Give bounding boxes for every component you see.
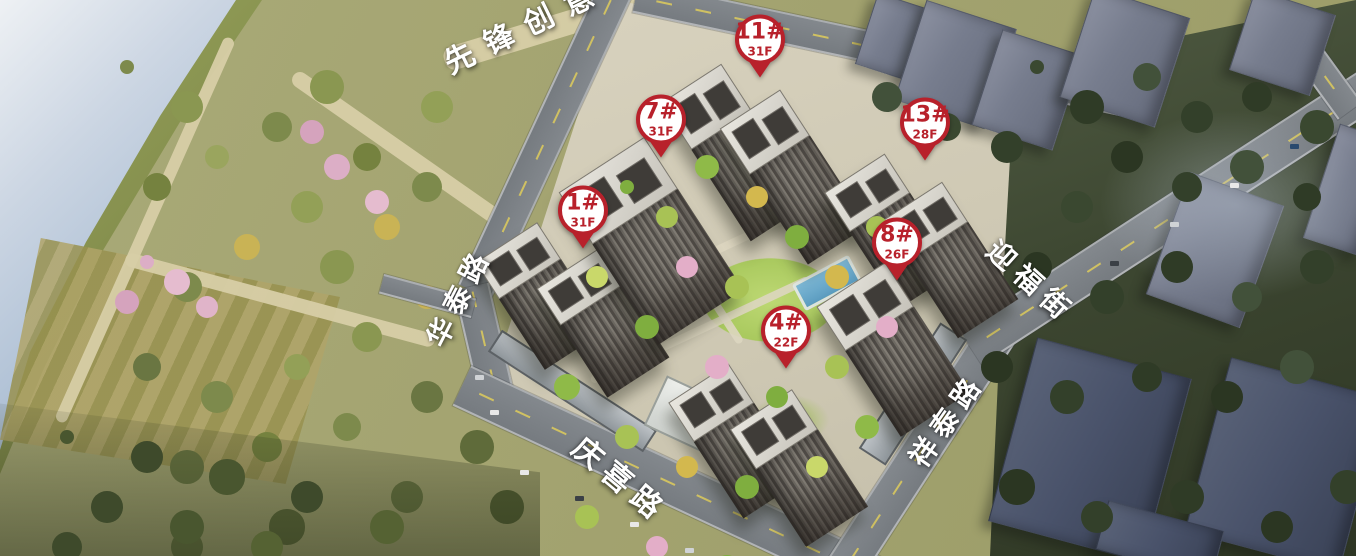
- city-trees: [1030, 60, 1044, 74]
- building-pin-4[interactable]: 4# 22F: [761, 306, 811, 369]
- pin-head: 13# 28F: [900, 98, 950, 148]
- pin-tail: [572, 233, 594, 249]
- park-path: [289, 69, 511, 231]
- pin-building-number: 1#: [566, 193, 600, 215]
- pin-tail: [914, 145, 936, 161]
- pin-floor-count: 31F: [649, 126, 674, 138]
- pin-head: 8# 26F: [872, 218, 922, 268]
- pin-tail: [749, 62, 771, 78]
- building-pin-1[interactable]: 1# 31F: [558, 186, 608, 249]
- pin-tail: [886, 265, 908, 281]
- courtyard-trees: [620, 180, 634, 194]
- pin-building-number: 13#: [900, 105, 949, 127]
- building-pin-11[interactable]: 11# 31F: [735, 15, 785, 78]
- pin-tail: [775, 353, 797, 369]
- pin-head: 1# 31F: [558, 186, 608, 236]
- pin-floor-count: 31F: [748, 46, 773, 58]
- pin-head: 7# 31F: [636, 95, 686, 145]
- atmospheric-haze: [1100, 110, 1356, 300]
- pin-floor-count: 31F: [571, 217, 596, 229]
- site-plan-stage: 先锋创意华泰路庆喜路祥泰路迎福街 1# 31F 4# 22F 7# 31F 8#…: [0, 0, 1356, 556]
- pin-building-number: 11#: [735, 22, 784, 44]
- building-pin-7[interactable]: 7# 31F: [636, 95, 686, 158]
- roadside-trees: [60, 430, 74, 444]
- building-pin-8[interactable]: 8# 26F: [872, 218, 922, 281]
- pin-tail: [650, 142, 672, 158]
- pin-floor-count: 28F: [913, 129, 938, 141]
- park-trees: [120, 60, 134, 74]
- cars-south-road: [520, 470, 529, 475]
- pin-building-number: 4#: [769, 313, 803, 335]
- pin-building-number: 7#: [644, 102, 678, 124]
- pin-floor-count: 26F: [885, 249, 910, 261]
- blossom-trees: [140, 255, 154, 269]
- pin-building-number: 8#: [880, 225, 914, 247]
- pin-floor-count: 22F: [774, 337, 799, 349]
- pin-head: 4# 22F: [761, 306, 811, 356]
- pin-head: 11# 31F: [735, 15, 785, 65]
- building-pin-13[interactable]: 13# 28F: [900, 98, 950, 161]
